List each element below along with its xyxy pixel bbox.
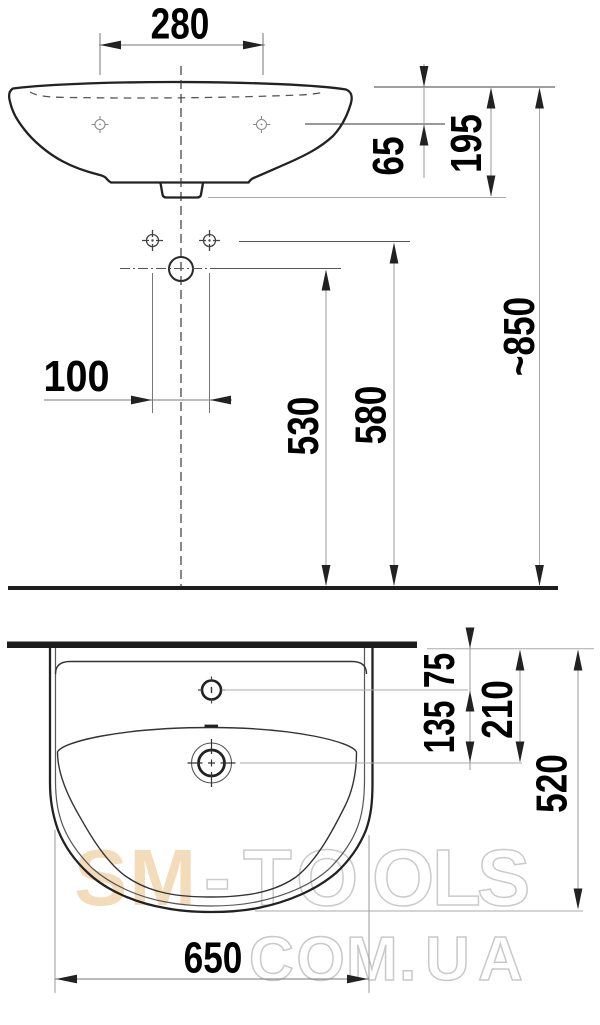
svg-text:280: 280 [151, 0, 210, 48]
svg-text:O: O [297, 925, 345, 994]
svg-text:L: L [432, 833, 481, 922]
svg-text:M: M [346, 925, 398, 994]
svg-text:.: . [399, 925, 416, 994]
svg-text:O: O [372, 833, 434, 922]
svg-text:U: U [425, 925, 470, 994]
svg-text:O: O [296, 833, 358, 922]
svg-text:580: 580 [347, 386, 396, 445]
svg-text:135: 135 [415, 701, 464, 754]
svg-text:S: S [477, 833, 530, 922]
svg-text:530: 530 [279, 397, 328, 456]
svg-text:650: 650 [184, 934, 243, 983]
svg-text:C: C [249, 925, 294, 994]
svg-text:~850: ~850 [495, 297, 544, 376]
svg-text:100: 100 [43, 351, 109, 400]
svg-text:65: 65 [364, 136, 413, 175]
svg-text:75: 75 [415, 653, 464, 688]
svg-text:520: 520 [528, 754, 577, 813]
svg-text:210: 210 [473, 680, 522, 739]
svg-text:-: - [204, 833, 231, 922]
svg-text:A: A [478, 925, 523, 994]
svg-text:195: 195 [442, 114, 491, 173]
